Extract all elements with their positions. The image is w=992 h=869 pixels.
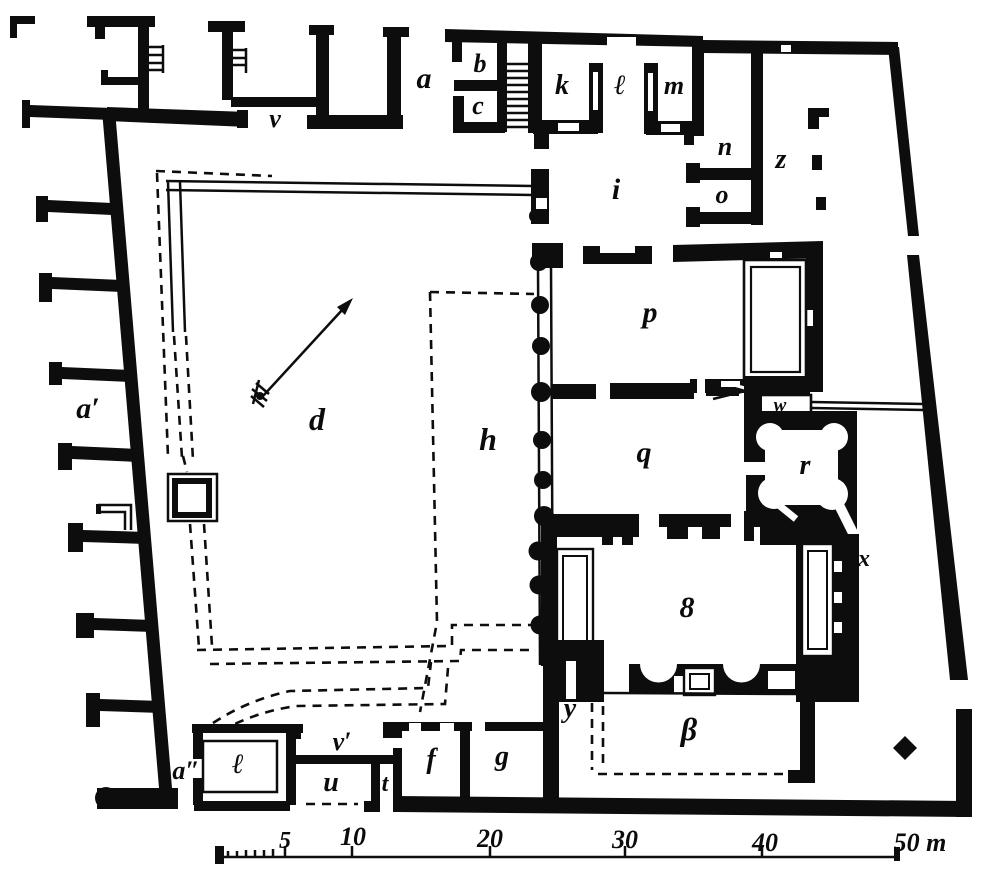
svg-text:k: k xyxy=(555,70,569,101)
svg-text:8: 8 xyxy=(680,591,695,624)
svg-text:ℓ: ℓ xyxy=(613,70,626,101)
svg-text:40: 40 xyxy=(751,828,778,857)
svg-text:v: v xyxy=(269,104,281,133)
svg-text:z: z xyxy=(775,144,787,175)
svg-text:x: x xyxy=(857,546,870,572)
svg-text:p: p xyxy=(640,296,658,329)
svg-text:i: i xyxy=(612,173,621,206)
svg-text:a: a xyxy=(417,62,432,95)
svg-text:y: y xyxy=(561,693,577,724)
svg-text:a″: a″ xyxy=(172,756,199,785)
svg-text:30: 30 xyxy=(611,825,638,854)
svg-text:20: 20 xyxy=(476,824,503,853)
svg-text:d: d xyxy=(309,401,326,437)
svg-text:v′: v′ xyxy=(333,727,352,756)
svg-text:a′: a′ xyxy=(76,392,99,425)
svg-text:n: n xyxy=(718,132,732,161)
svg-text:r: r xyxy=(800,450,812,481)
svg-text:5: 5 xyxy=(279,828,291,854)
svg-text:10: 10 xyxy=(340,822,366,851)
svg-text:c: c xyxy=(472,91,484,120)
svg-text:b: b xyxy=(474,49,487,78)
svg-text:β: β xyxy=(680,711,698,747)
svg-text:h: h xyxy=(479,421,497,457)
svg-text:g: g xyxy=(494,741,509,772)
svg-text:50 m: 50 m xyxy=(894,828,947,857)
svg-text:ℓ: ℓ xyxy=(231,749,244,780)
svg-text:q: q xyxy=(637,436,652,469)
svg-text:m: m xyxy=(664,71,684,100)
svg-text:u: u xyxy=(323,767,339,798)
svg-text:w: w xyxy=(774,395,787,416)
svg-text:o: o xyxy=(716,180,729,209)
